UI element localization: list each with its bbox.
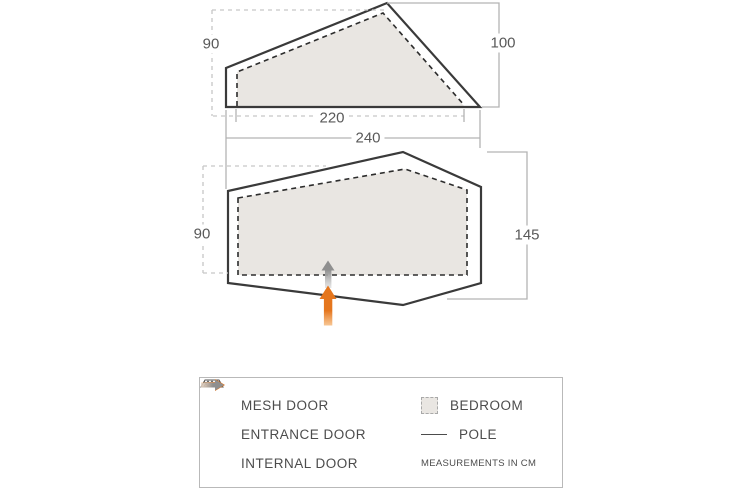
legend-label-mesh-door: MESH DOOR — [241, 398, 329, 413]
legend-label-bedroom: BEDROOM — [450, 398, 523, 413]
legend-item-bedroom: BEDROOM — [421, 397, 562, 414]
bedroom-swatch-icon — [421, 397, 438, 414]
dim-label-plan-outer-depth: 145 — [510, 226, 543, 245]
legend-measurements-note: MEASUREMENTS IN CM — [421, 458, 536, 469]
side-view — [212, 3, 499, 189]
legend-box: MESH DOOR BEDROOM ENTRANCE DOOR POLE — [199, 377, 563, 488]
dim-label-plan-bedroom-depth: 90 — [190, 225, 215, 244]
legend-item-pole: POLE — [421, 427, 562, 442]
legend-label-internal-door: INTERNAL DOOR — [241, 456, 358, 471]
dim-label-side-outer-height: 100 — [486, 34, 519, 53]
dim-label-side-inner-length: 220 — [315, 109, 348, 128]
dim-label-side-outer-length: 240 — [351, 129, 384, 148]
floor-plan-view — [203, 152, 527, 326]
legend-item-measurements-note: MEASUREMENTS IN CM — [421, 458, 562, 469]
entrance-door-arrow-icon — [320, 286, 337, 326]
dim-label-side-inner-height: 90 — [199, 35, 224, 54]
legend-label-entrance-door: ENTRANCE DOOR — [241, 427, 366, 442]
tent-spec-diagram: 90 100 220 240 90 145 MESH DOOR BEDROOM — [0, 0, 750, 500]
pole-line-icon — [421, 434, 447, 435]
legend-item-internal-door: INTERNAL DOOR — [229, 456, 421, 471]
legend-item-mesh-door: MESH DOOR — [229, 398, 421, 413]
legend-label-pole: POLE — [459, 427, 497, 442]
bedroom-fill — [238, 169, 467, 275]
legend-item-entrance-door: ENTRANCE DOOR — [229, 427, 421, 442]
